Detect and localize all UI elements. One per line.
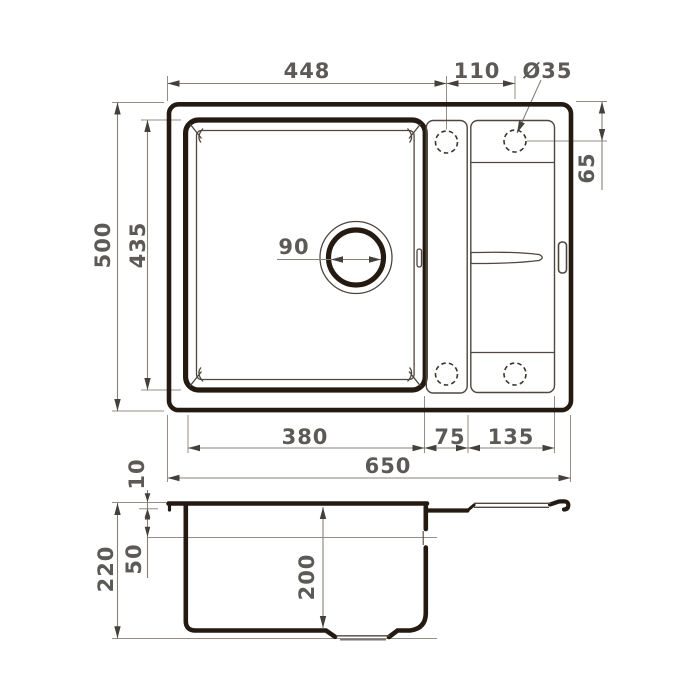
dim-label-10: 10 <box>125 458 149 489</box>
dim-label-435: 435 <box>126 222 150 269</box>
dim-label-220: 220 <box>94 546 118 593</box>
dim-label-500: 500 <box>91 222 115 269</box>
dim-label-90: 90 <box>278 235 309 259</box>
dimension-lines-top <box>118 80 603 478</box>
dim-label-50: 50 <box>122 543 146 574</box>
section-thin-edges <box>336 503 551 640</box>
dim-label-75: 75 <box>434 425 465 449</box>
dim-label-65: 65 <box>575 152 599 183</box>
sink-technical-drawing: 448 110 Ø35 90 500 435 65 380 75 135 650 <box>0 0 700 700</box>
extension-lines-side <box>112 503 437 639</box>
sink-section-profile <box>169 501 569 637</box>
dim-label-110: 110 <box>454 59 501 83</box>
technical-drawing-page: 448 110 Ø35 90 500 435 65 380 75 135 650 <box>0 0 700 700</box>
dim-label-diameter-35: Ø35 <box>522 59 572 83</box>
rim-overflow-slot <box>559 242 567 273</box>
drainboard-ledge <box>471 252 542 263</box>
dim-label-200: 200 <box>295 554 319 601</box>
bowl-overflow-slot <box>417 249 422 267</box>
top-view: 448 110 Ø35 90 500 435 65 380 75 135 650 <box>91 59 607 482</box>
small-dim-arrows <box>145 493 151 537</box>
dim-label-135: 135 <box>488 425 535 449</box>
side-view: 10 50 220 200 <box>94 458 568 639</box>
dim-label-448: 448 <box>284 59 331 83</box>
tap-deck <box>426 121 467 394</box>
dim-label-380: 380 <box>282 425 329 449</box>
dim-label-650: 650 <box>365 454 412 478</box>
